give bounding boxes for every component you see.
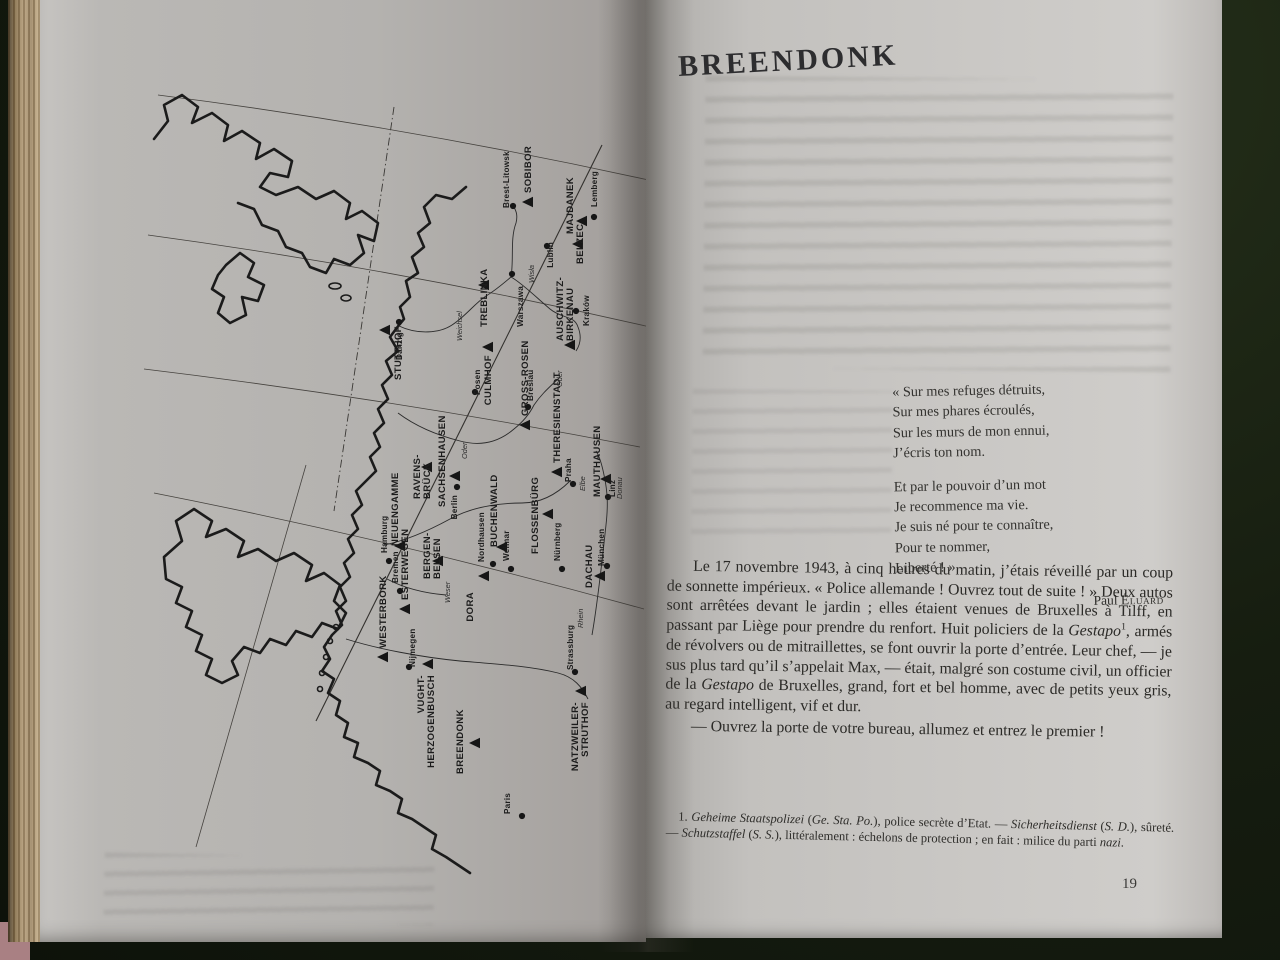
river-label-wis-a: Wisła — [527, 265, 536, 283]
city-label-lublin: Lublin — [546, 242, 555, 268]
body-text: Le 17 novembre 1943, à cinq heures du ma… — [665, 556, 1173, 742]
showthrough-ghost-mid — [691, 389, 893, 541]
river-label-elbe: Elbe — [578, 476, 587, 491]
footnote-italic: Schutzstaffel — [681, 826, 745, 841]
page-number: 19 — [1122, 876, 1137, 893]
camp-label-sobibor: SOBIBOR — [523, 146, 534, 193]
camp-marker-theresienstadt — [551, 467, 562, 477]
camp-label-herzogenbusch: HERZOGENBUSCH — [426, 675, 437, 768]
footnote-italic: Ge. Sta. Po. — [812, 813, 874, 828]
city-label-nijmegen: Nijmegen — [408, 629, 417, 667]
footnote-text: 1. — [678, 810, 691, 824]
baltic-island — [329, 283, 341, 289]
camp-label-westerbork: WESTERBORK — [378, 575, 389, 648]
map-markers: STUTTHOFSOBIBORMAJDANEKBELZECTREBLINKAAU… — [377, 146, 624, 819]
city-label-brest-litowsk: Brest-Litowsk — [502, 151, 511, 208]
footnote-text: ), police secrète d’Etat. — — [873, 814, 1011, 831]
footnote-italic: S. D. — [1105, 819, 1131, 834]
city-marker-berlin — [454, 484, 460, 490]
showthrough-ghost-top — [702, 76, 1173, 373]
city-label-krak-w: Kraków — [582, 295, 591, 326]
city-label-strassburg: Strassburg — [566, 625, 575, 670]
city-label-nordhausen: Nordhausen — [477, 512, 486, 562]
city-label-m-nchen: München — [597, 529, 606, 566]
meridian-dashdot-line — [334, 107, 394, 511]
river-label-rhein: Rhein — [576, 609, 585, 628]
poem-line: J’écris ton nom. — [893, 439, 1165, 464]
left-page: STUTTHOFSOBIBORMAJDANEKBELZECTREBLINKAAU… — [40, 0, 646, 942]
camp-label-belsen: BELSEN — [432, 538, 443, 579]
city-marker-danzig — [396, 319, 402, 325]
camp-marker-gross-rosen — [519, 420, 530, 430]
camp-label-br-ck: BRÜCK — [422, 463, 433, 499]
camp-marker-culmhof — [482, 342, 493, 352]
concentration-camps-map: STUTTHOFSOBIBORMAJDANEKBELZECTREBLINKAAU… — [130, 79, 650, 879]
footnote-italic: nazi — [1100, 835, 1121, 849]
river-bug — [511, 207, 517, 277]
right-page: BREENDONK « Sur mes refuges détruits,Sur… — [646, 0, 1222, 938]
city-label-bremen: Bremen — [391, 551, 400, 583]
city-marker-nordhausen — [490, 561, 496, 567]
city-label-n-rnberg: Nürnberg — [553, 523, 562, 561]
river-label-weichsel: Weichsel — [455, 311, 464, 341]
paragraph-1: Le 17 novembre 1943, à cinq heures du ma… — [665, 556, 1173, 721]
city-marker-paris — [519, 813, 525, 819]
city-label-danzig: Danzig — [395, 332, 404, 360]
city-marker-lemberg — [591, 214, 597, 220]
frisian-island — [318, 687, 323, 692]
camp-label-flossenb-rg: FLOSSENBÜRG — [530, 477, 541, 554]
city-marker-n-rnberg — [559, 566, 565, 572]
camp-label-dora: DORA — [465, 592, 476, 622]
camp-marker-vught — [422, 659, 433, 669]
footnote-italic: Sicherheitsdienst — [1011, 817, 1097, 833]
camp-label-treblinka: TREBLINKA — [479, 269, 490, 328]
city-marker-breslau — [525, 404, 531, 410]
camp-label-dachau: DACHAU — [584, 544, 595, 588]
footnote: 1. Geheime Staatspolizei (Ge. Sta. Po.),… — [666, 808, 1175, 852]
coast-denmark — [212, 253, 264, 323]
camp-marker-sachsenhausen — [449, 471, 460, 481]
camp-marker-flossenb-rg — [542, 509, 553, 519]
camp-marker-westerbork — [377, 652, 388, 662]
footnote-italic: Geheime Staatspolizei — [691, 810, 804, 827]
river-label-oder: Oder — [555, 370, 564, 387]
frisian-island — [320, 671, 325, 676]
river-label-oder: Oder — [460, 442, 469, 459]
camp-label-sachsenhausen: SACHSENHAUSEN — [437, 415, 448, 507]
poem-stanza-1: « Sur mes refuges détruits,Sur mes phare… — [892, 378, 1165, 464]
gestapo-italic: Gestapo — [1068, 622, 1121, 640]
camp-marker-stutthof — [379, 325, 390, 335]
camp-marker-esterwegen — [399, 604, 410, 614]
footnote-italic: S. S. — [752, 828, 774, 842]
city-label-berlin: Berlin — [450, 495, 459, 519]
footnote-text: . — [1121, 836, 1124, 850]
camp-label-belzec: BELZEC — [575, 224, 586, 264]
camp-label-culmhof: CULMHOF — [483, 355, 494, 405]
frisian-island — [328, 639, 333, 644]
city-label-warszawa: Warszawa — [516, 286, 525, 327]
camp-label-birkenau: BIRKENAU — [565, 288, 576, 341]
camp-marker-dora — [478, 571, 489, 581]
city-marker-krak-w — [573, 308, 579, 314]
camp-marker-sobibor — [522, 197, 533, 207]
baltic-island — [341, 295, 351, 301]
city-marker-warszawa — [509, 271, 515, 277]
book-photo: STUTTHOFSOBIBORMAJDANEKBELZECTREBLINKAAU… — [0, 0, 1280, 960]
river-label-donau: Donau — [615, 477, 624, 499]
chapter-title: BREENDONK — [677, 39, 899, 84]
camp-marker-breendonk — [469, 738, 480, 748]
camp-label-buchenwald: BUCHENWALD — [489, 474, 500, 547]
city-marker-weimar — [508, 566, 514, 572]
city-label-breslau: Breslau — [526, 370, 535, 401]
coast-britain — [164, 509, 346, 683]
gestapo-italic: Gestapo — [701, 676, 754, 694]
camp-label-struthof: STRUTHOF — [580, 702, 591, 757]
city-label-weimar: Weimar — [502, 530, 511, 561]
camp-label-mauthausen: MAUTHAUSEN — [592, 425, 603, 497]
city-label-paris: Paris — [503, 793, 512, 814]
city-label-praha: Praha — [564, 458, 573, 482]
camp-label-breendonk: BREENDONK — [455, 709, 466, 774]
city-marker-bremen — [397, 588, 403, 594]
city-label-hamburg: Hamburg — [380, 516, 389, 553]
city-label-lemberg: Lemberg — [590, 171, 599, 207]
frisian-island — [324, 655, 329, 660]
city-label-posen: Posen — [473, 369, 482, 395]
river-label-weser: Weser — [443, 581, 452, 603]
